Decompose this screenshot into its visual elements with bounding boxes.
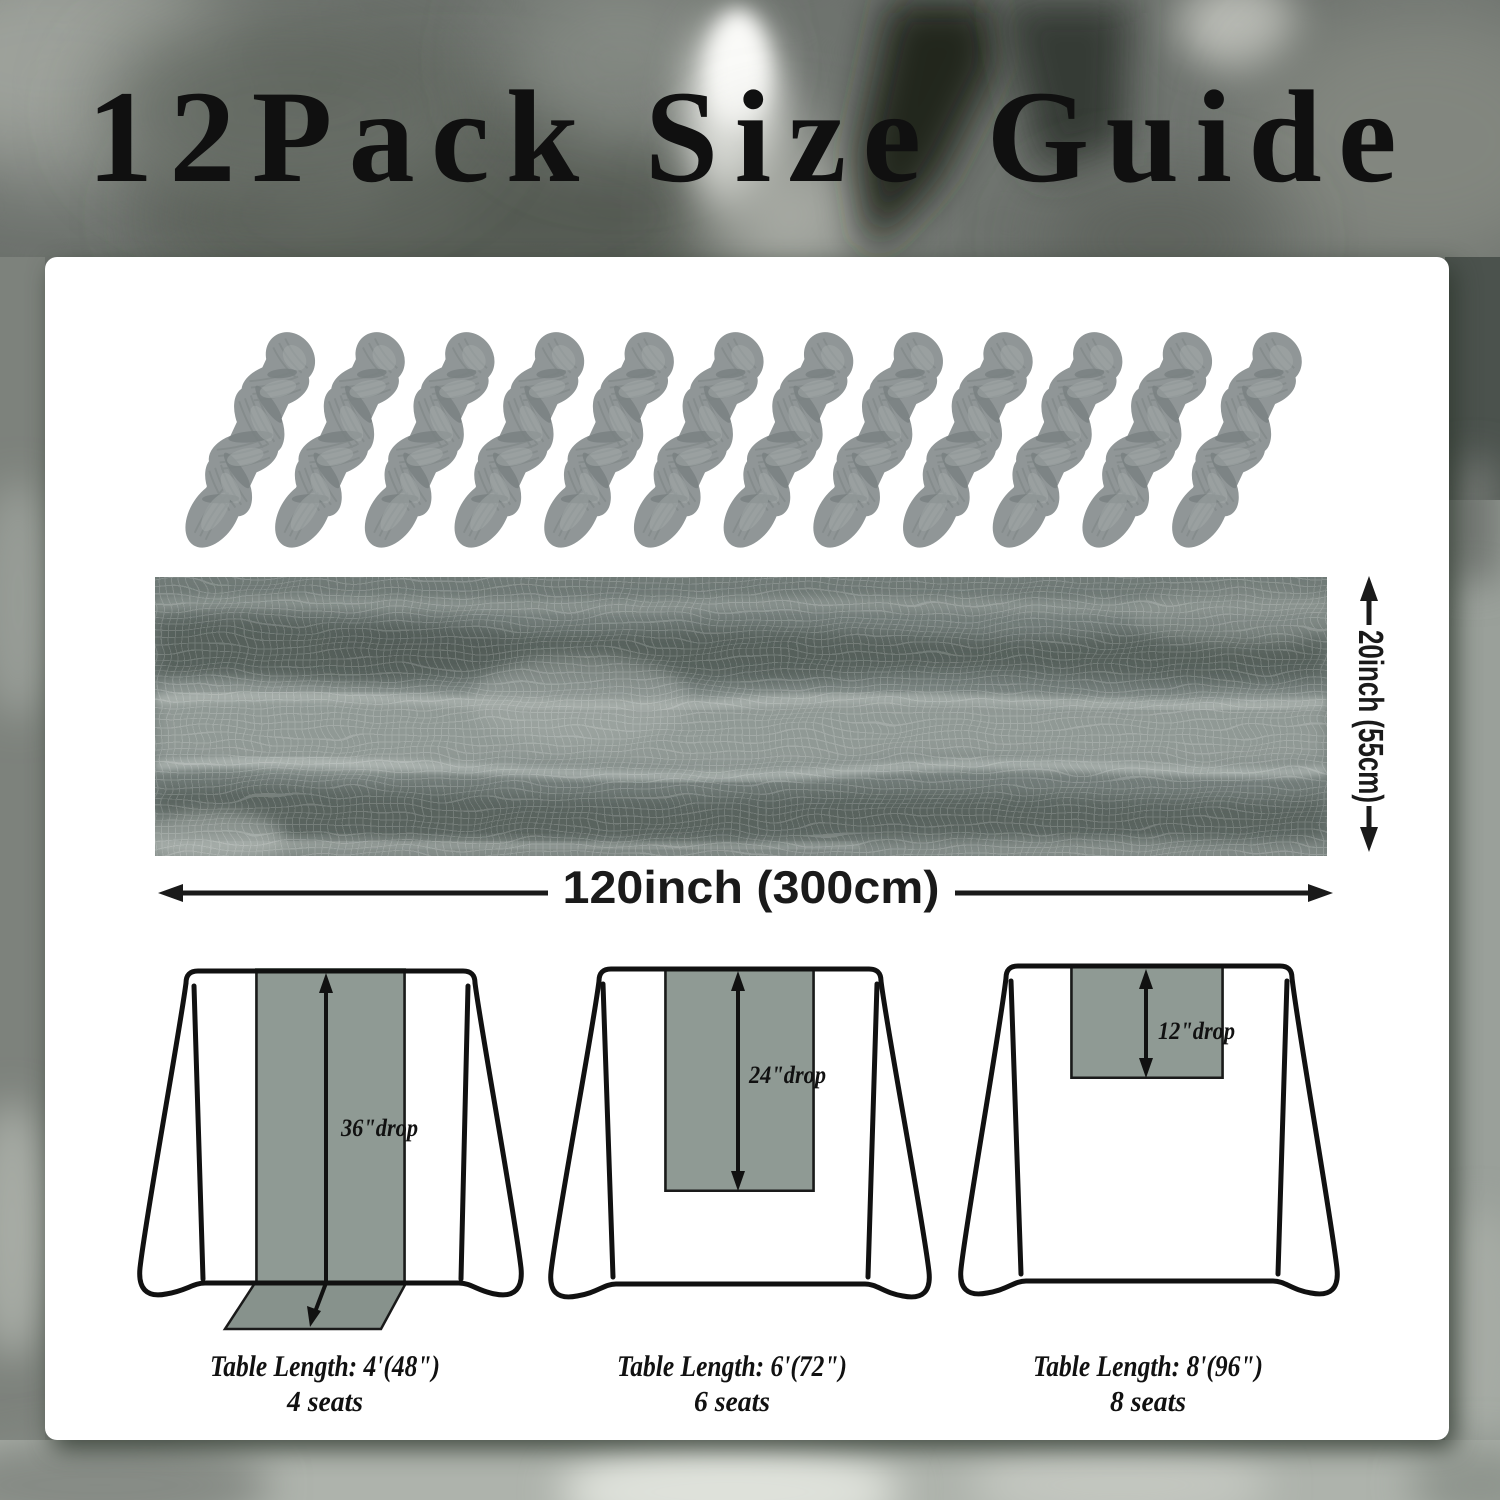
svg-text:36"drop: 36"drop (340, 1115, 418, 1142)
svg-text:Table Length: 4'(48"): Table Length: 4'(48") (210, 1350, 440, 1383)
svg-text:24"drop: 24"drop (748, 1062, 826, 1089)
svg-text:20inch (55cm): 20inch (55cm) (1351, 630, 1390, 803)
svg-text:120inch (300cm): 120inch (300cm) (563, 861, 940, 913)
svg-text:12"drop: 12"drop (1158, 1018, 1235, 1045)
svg-text:4 seats: 4 seats (286, 1386, 363, 1418)
svg-text:8 seats: 8 seats (1110, 1386, 1186, 1418)
svg-text:6 seats: 6 seats (694, 1386, 770, 1418)
svg-text:Table Length: 8'(96"): Table Length: 8'(96") (1033, 1350, 1263, 1383)
svg-text:Table Length: 6'(72"): Table Length: 6'(72") (617, 1350, 847, 1383)
